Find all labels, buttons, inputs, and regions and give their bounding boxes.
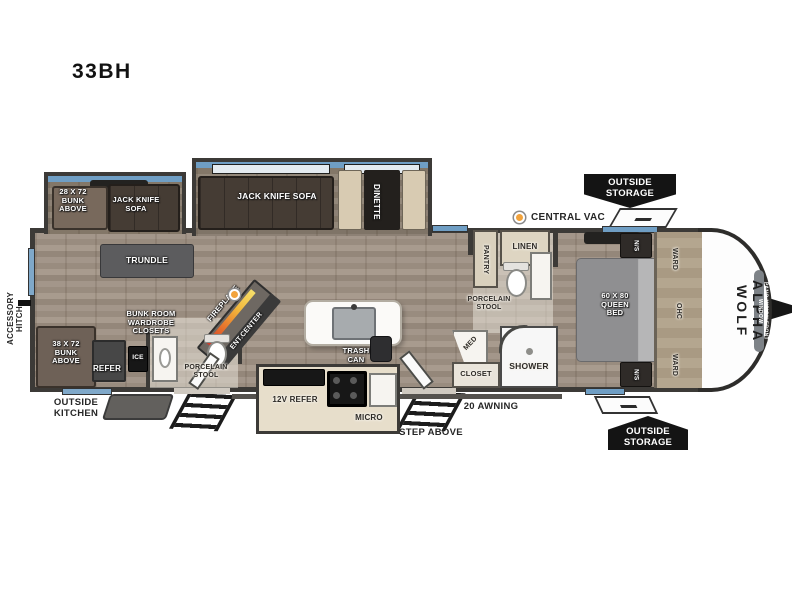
kitchen-top-window bbox=[432, 225, 468, 232]
range-oven bbox=[327, 371, 367, 407]
bunkroom-bottom-window bbox=[62, 388, 112, 395]
burner-icon bbox=[333, 377, 340, 384]
nightstand-bottom-label: N/S bbox=[632, 365, 639, 385]
wall-bath-bedroom bbox=[553, 231, 558, 267]
accessory-hitch-label: ACCESSORY HITCH bbox=[6, 293, 24, 345]
mainbath-toilet-label: PORCELAIN STOOL bbox=[464, 296, 514, 312]
nightstand-top-label: N/S bbox=[632, 236, 639, 256]
front-storage-hatch-bottom bbox=[594, 396, 658, 414]
bunkbath-vanity bbox=[152, 336, 178, 382]
wardrobe-bottom-label: WARD bbox=[670, 344, 678, 386]
hatch-handle-icon bbox=[620, 405, 637, 408]
counter-sink-cover bbox=[369, 373, 397, 407]
burner-icon bbox=[350, 377, 357, 384]
bunk-door-opening bbox=[174, 388, 230, 394]
micro-label: MICRO bbox=[343, 413, 395, 422]
bunkbath-toilet-label: PORCELAIN STOOL bbox=[180, 364, 232, 380]
outside-storage-badge-top: OUTSIDE STORAGE bbox=[584, 174, 676, 208]
rear-window bbox=[28, 248, 35, 296]
pantry-label: PANTRY bbox=[481, 236, 489, 284]
lower-bunk-label: 38 X 72 BUNK ABOVE bbox=[42, 340, 90, 366]
awning-label: 20 AWNING bbox=[456, 402, 526, 413]
step-above-label: STEP ABOVE bbox=[398, 428, 464, 439]
wardrobe-top-label: WARD bbox=[670, 238, 678, 280]
kitchen-counter: 12V REFER MICRO bbox=[256, 364, 400, 434]
shower-label: SHOWER bbox=[504, 362, 554, 372]
trundle-label: TRUNDLE bbox=[112, 256, 182, 266]
main-slide-window-left bbox=[212, 164, 330, 174]
central-vac-label: CENTRAL VAC bbox=[531, 212, 621, 224]
faucet-icon bbox=[351, 304, 357, 310]
outside-kitchen-hatch bbox=[102, 394, 174, 420]
outside-refer-label: REFER bbox=[84, 364, 130, 373]
main-door-opening bbox=[402, 388, 456, 394]
shower bbox=[500, 326, 558, 388]
mainbath-vanity bbox=[530, 252, 552, 300]
queen-bed-label: 60 X 80 QUEEN BED bbox=[592, 292, 638, 318]
ohc-label: OHC bbox=[674, 292, 682, 330]
burner-icon bbox=[333, 392, 340, 399]
tv-hookup-dot-icon bbox=[229, 289, 240, 300]
bunk-above-label: 28 X 72 BUNK ABOVE bbox=[48, 188, 98, 214]
outside-kitchen-refer bbox=[92, 340, 126, 382]
shower-drain-icon bbox=[526, 348, 533, 355]
ice-label: ICE bbox=[128, 354, 148, 361]
burner-icon bbox=[350, 392, 357, 399]
bunk-entry-steps bbox=[169, 393, 237, 432]
living-sofa-label: JACK KNIFE SOFA bbox=[222, 192, 332, 202]
front-cap: ALPHA WOLF PANO-VISION FRONT WINDOW bbox=[698, 228, 772, 392]
cooktop bbox=[263, 369, 325, 386]
outside-kitchen-label: OUTSIDE KITCHEN bbox=[48, 398, 104, 420]
dinette-table bbox=[364, 170, 400, 230]
central-vac-dot-icon bbox=[514, 212, 525, 223]
bunk-slide-sofa-label: JACK KNIFE SOFA bbox=[108, 196, 164, 213]
bunk-wardrobe-label: BUNK ROOM WARDROBE CLOSETS bbox=[112, 310, 190, 336]
outside-storage-badge-bottom: OUTSIDE STORAGE bbox=[608, 416, 688, 450]
hatch-handle-icon bbox=[634, 218, 652, 221]
floorplan-canvas: 33BH ACCESSORY HITCH 28 X 72 BUNK ABOVE … bbox=[0, 0, 800, 600]
island-sink bbox=[332, 307, 376, 340]
bunkbath-sink bbox=[159, 348, 171, 368]
linen-label: LINEN bbox=[504, 242, 546, 251]
dinette-bench-right bbox=[402, 170, 426, 230]
living-sofa bbox=[198, 176, 334, 230]
trash-can-label: TRASH CAN bbox=[336, 347, 376, 364]
front-window-pill: PANO-VISION FRONT WINDOW bbox=[754, 270, 764, 352]
closet-label: CLOSET bbox=[454, 370, 498, 379]
floorplan-title: 33BH bbox=[72, 60, 132, 84]
dinette-label: DINETTE bbox=[372, 172, 381, 232]
dinette-bench-left bbox=[338, 170, 362, 230]
mainbath-toilet bbox=[506, 269, 527, 297]
kitchen-refer-label: 12V REFER bbox=[267, 395, 323, 404]
front-window-label: PANO-VISION FRONT WINDOW bbox=[756, 274, 768, 348]
bedroom-bottom-window bbox=[585, 388, 625, 395]
